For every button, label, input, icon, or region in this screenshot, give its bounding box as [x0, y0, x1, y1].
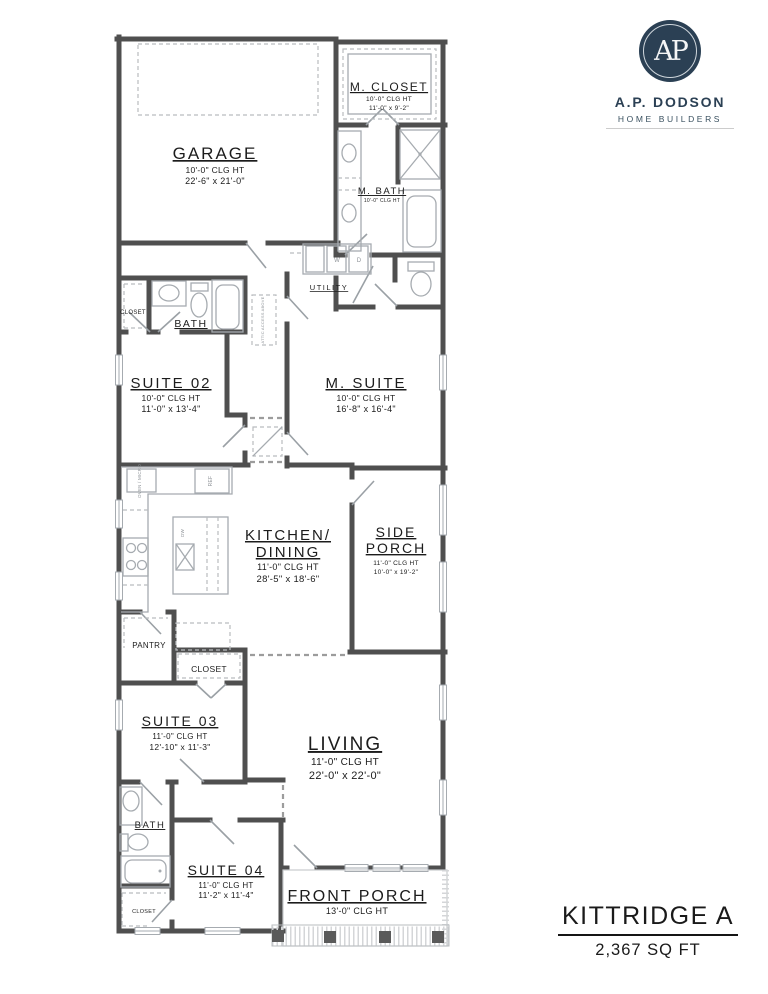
- svg-text:M. CLOSET: M. CLOSET: [350, 80, 428, 94]
- oven-micro-label: OVEN / MICRO: [137, 464, 142, 498]
- cooktop: [123, 538, 148, 576]
- room-label-hall-closet: CLOSET: [191, 664, 227, 674]
- bifold-door: [196, 684, 226, 698]
- window: [116, 500, 123, 528]
- door-swing: [375, 284, 397, 306]
- toilet: [408, 262, 434, 296]
- kitchen-island: [173, 517, 228, 594]
- svg-text:11'-0" x 13'-4": 11'-0" x 13'-4": [141, 404, 200, 414]
- svg-text:M. SUITE: M. SUITE: [325, 375, 406, 392]
- brand-rule: [606, 128, 734, 129]
- title-block: KITTRIDGE A 2,367 SQ FT: [540, 902, 756, 960]
- room-label-garage: GARAGE 10'-0" CLG HT 22'-6" x 21'-0": [173, 144, 258, 186]
- svg-text:10'-0" CLG HT: 10'-0" CLG HT: [364, 198, 400, 204]
- window: [440, 485, 447, 535]
- brand-name: A.P. DODSON: [598, 94, 742, 110]
- window: [116, 355, 123, 385]
- room-label-pantry: PANTRY: [132, 641, 166, 650]
- svg-text:10'-0" CLG HT: 10'-0" CLG HT: [336, 393, 395, 403]
- door-swing: [287, 432, 308, 455]
- svg-text:DINING: DINING: [256, 544, 321, 561]
- garage-door-dashed: [138, 44, 318, 115]
- svg-text:16'-8" x 16'-4": 16'-8" x 16'-4": [336, 404, 396, 414]
- svg-text:SUITE 04: SUITE 04: [188, 862, 265, 878]
- shower: [400, 130, 440, 179]
- door-swing: [140, 782, 162, 805]
- room-label-m-suite: M. SUITE 10'-0" CLG HT 16'-8" x 16'-4": [325, 375, 406, 414]
- brand-tagline: HOME BUILDERS: [598, 114, 742, 124]
- tub: [403, 190, 441, 252]
- toilet: [120, 834, 148, 851]
- room-label-living: LIVING 11'-0" CLG HT 22'-0" x 22'-0": [308, 734, 382, 782]
- tub: [212, 280, 243, 332]
- svg-text:CLOSET: CLOSET: [191, 664, 227, 674]
- attic-note: ATTIC ACCESS ABOVE: [260, 296, 265, 343]
- page: W D: [0, 0, 768, 994]
- svg-text:SUITE 02: SUITE 02: [130, 375, 211, 392]
- logo-monogram: AP: [639, 20, 701, 82]
- svg-text:PANTRY: PANTRY: [132, 641, 166, 650]
- porch-column: [324, 931, 336, 943]
- porch-column: [432, 931, 444, 943]
- washer-label: W: [334, 258, 340, 264]
- window: [440, 685, 447, 720]
- door-swing: [140, 612, 161, 634]
- room-label-closet4: CLOSET: [132, 909, 156, 915]
- window: [116, 572, 123, 600]
- svg-text:11'-0" CLG HT: 11'-0" CLG HT: [152, 732, 207, 741]
- front-door-swing: [294, 845, 317, 868]
- brand-logo: AP A.P. DODSON HOME BUILDERS: [598, 20, 742, 129]
- svg-text:PORCH: PORCH: [366, 540, 427, 556]
- svg-text:10'-0" CLG HT: 10'-0" CLG HT: [141, 393, 200, 403]
- plan-area: 2,367 SQ FT: [540, 941, 756, 960]
- room-label-bath4: BATH: [135, 820, 166, 831]
- door-swing: [246, 243, 266, 268]
- room-label-suite04: SUITE 04 11'-0" CLG HT 11'-2" x 11'-4": [188, 862, 265, 900]
- svg-text:28'-5" x 18'-6": 28'-5" x 18'-6": [257, 574, 320, 585]
- plan-name: KITTRIDGE A: [558, 902, 738, 936]
- sink: [123, 791, 139, 811]
- room-labels: GARAGE 10'-0" CLG HT 22'-6" x 21'-0" M. …: [120, 80, 428, 916]
- svg-text:11'-0" CLG HT: 11'-0" CLG HT: [198, 881, 253, 890]
- walls: [117, 37, 445, 931]
- sink: [342, 144, 356, 162]
- room-label-front-porch: FRONT PORCH 13'-0" CLG HT: [287, 888, 426, 916]
- sink: [159, 285, 179, 301]
- window: [135, 928, 160, 935]
- room-label-m-closet: M. CLOSET 10'-0" CLG HT 11'-0" x 9'-2": [350, 80, 428, 112]
- svg-text:SIDE: SIDE: [376, 524, 417, 540]
- svg-text:10'-0" x 19'-2": 10'-0" x 19'-2": [374, 569, 419, 576]
- room-label-side-porch: SIDE PORCH 11'-0" CLG HT 10'-0" x 19'-2": [366, 524, 427, 576]
- svg-text:22'-6" x 21'-0": 22'-6" x 21'-0": [185, 176, 245, 186]
- door-swing: [287, 296, 308, 319]
- window: [440, 780, 447, 815]
- svg-text:10'-0" CLG HT: 10'-0" CLG HT: [366, 96, 412, 103]
- svg-text:M. BATH: M. BATH: [358, 186, 406, 197]
- toilet: [191, 283, 208, 317]
- dryer-label: D: [357, 258, 362, 264]
- fixtures: W D: [120, 44, 441, 926]
- ref-label: REF: [208, 476, 214, 487]
- room-label-suite02: SUITE 02 10'-0" CLG HT 11'-0" x 13'-4": [130, 375, 211, 414]
- closet-shelving: [124, 284, 145, 328]
- svg-text:22'-0" x 22'-0": 22'-0" x 22'-0": [309, 770, 381, 782]
- bench-dashed: [176, 623, 230, 650]
- window: [440, 562, 447, 612]
- tub: [121, 856, 170, 887]
- sink: [342, 204, 356, 222]
- svg-text:KITCHEN/: KITCHEN/: [245, 527, 331, 544]
- washer-dryer: W D: [290, 244, 371, 274]
- svg-text:11'-0" CLG HT: 11'-0" CLG HT: [373, 560, 419, 567]
- svg-text:GARAGE: GARAGE: [173, 144, 258, 163]
- room-label-utility: UTILITY: [310, 283, 348, 292]
- window: [116, 700, 123, 730]
- room-label-kitchen-dining: KITCHEN/ DINING 11'-0" CLG HT 28'-5" x 1…: [245, 527, 331, 585]
- window: [205, 928, 240, 935]
- attic-access: [252, 295, 282, 456]
- room-label-suite03: SUITE 03 11'-0" CLG HT 12'-10" x 11'-3": [142, 713, 219, 752]
- svg-text:BATH: BATH: [174, 318, 207, 330]
- svg-text:11'-0" CLG HT: 11'-0" CLG HT: [311, 757, 379, 768]
- svg-text:SUITE 03: SUITE 03: [142, 713, 219, 729]
- door-swing: [223, 425, 245, 447]
- door-swing: [180, 759, 204, 782]
- logo-circle-icon: AP: [639, 20, 701, 82]
- svg-text:10'-0" CLG HT: 10'-0" CLG HT: [185, 165, 244, 175]
- svg-text:FRONT PORCH: FRONT PORCH: [287, 888, 426, 905]
- porch-column: [272, 930, 284, 942]
- porch-column: [379, 931, 391, 943]
- svg-text:12'-10" x 11'-3": 12'-10" x 11'-3": [149, 742, 210, 752]
- floor-plan: W D: [0, 0, 768, 994]
- room-label-bath2: BATH: [174, 318, 207, 330]
- svg-text:11'-2" x 11'-4": 11'-2" x 11'-4": [198, 890, 254, 900]
- door-swing: [352, 481, 374, 505]
- dw-label: DW: [180, 529, 185, 537]
- svg-text:11'-0" x 9'-2": 11'-0" x 9'-2": [369, 105, 409, 112]
- room-label-closet2: CLOSET: [120, 310, 146, 316]
- window: [440, 355, 447, 390]
- svg-text:CLOSET: CLOSET: [120, 310, 146, 316]
- svg-text:11'-0" CLG HT: 11'-0" CLG HT: [257, 562, 319, 572]
- svg-text:UTILITY: UTILITY: [310, 283, 348, 292]
- svg-text:13'-0" CLG HT: 13'-0" CLG HT: [326, 906, 389, 916]
- svg-text:BATH: BATH: [135, 820, 166, 831]
- room-label-m-bath: M. BATH 10'-0" CLG HT: [358, 186, 406, 204]
- door-swing: [210, 820, 234, 844]
- svg-text:CLOSET: CLOSET: [132, 909, 156, 915]
- svg-text:LIVING: LIVING: [308, 734, 382, 755]
